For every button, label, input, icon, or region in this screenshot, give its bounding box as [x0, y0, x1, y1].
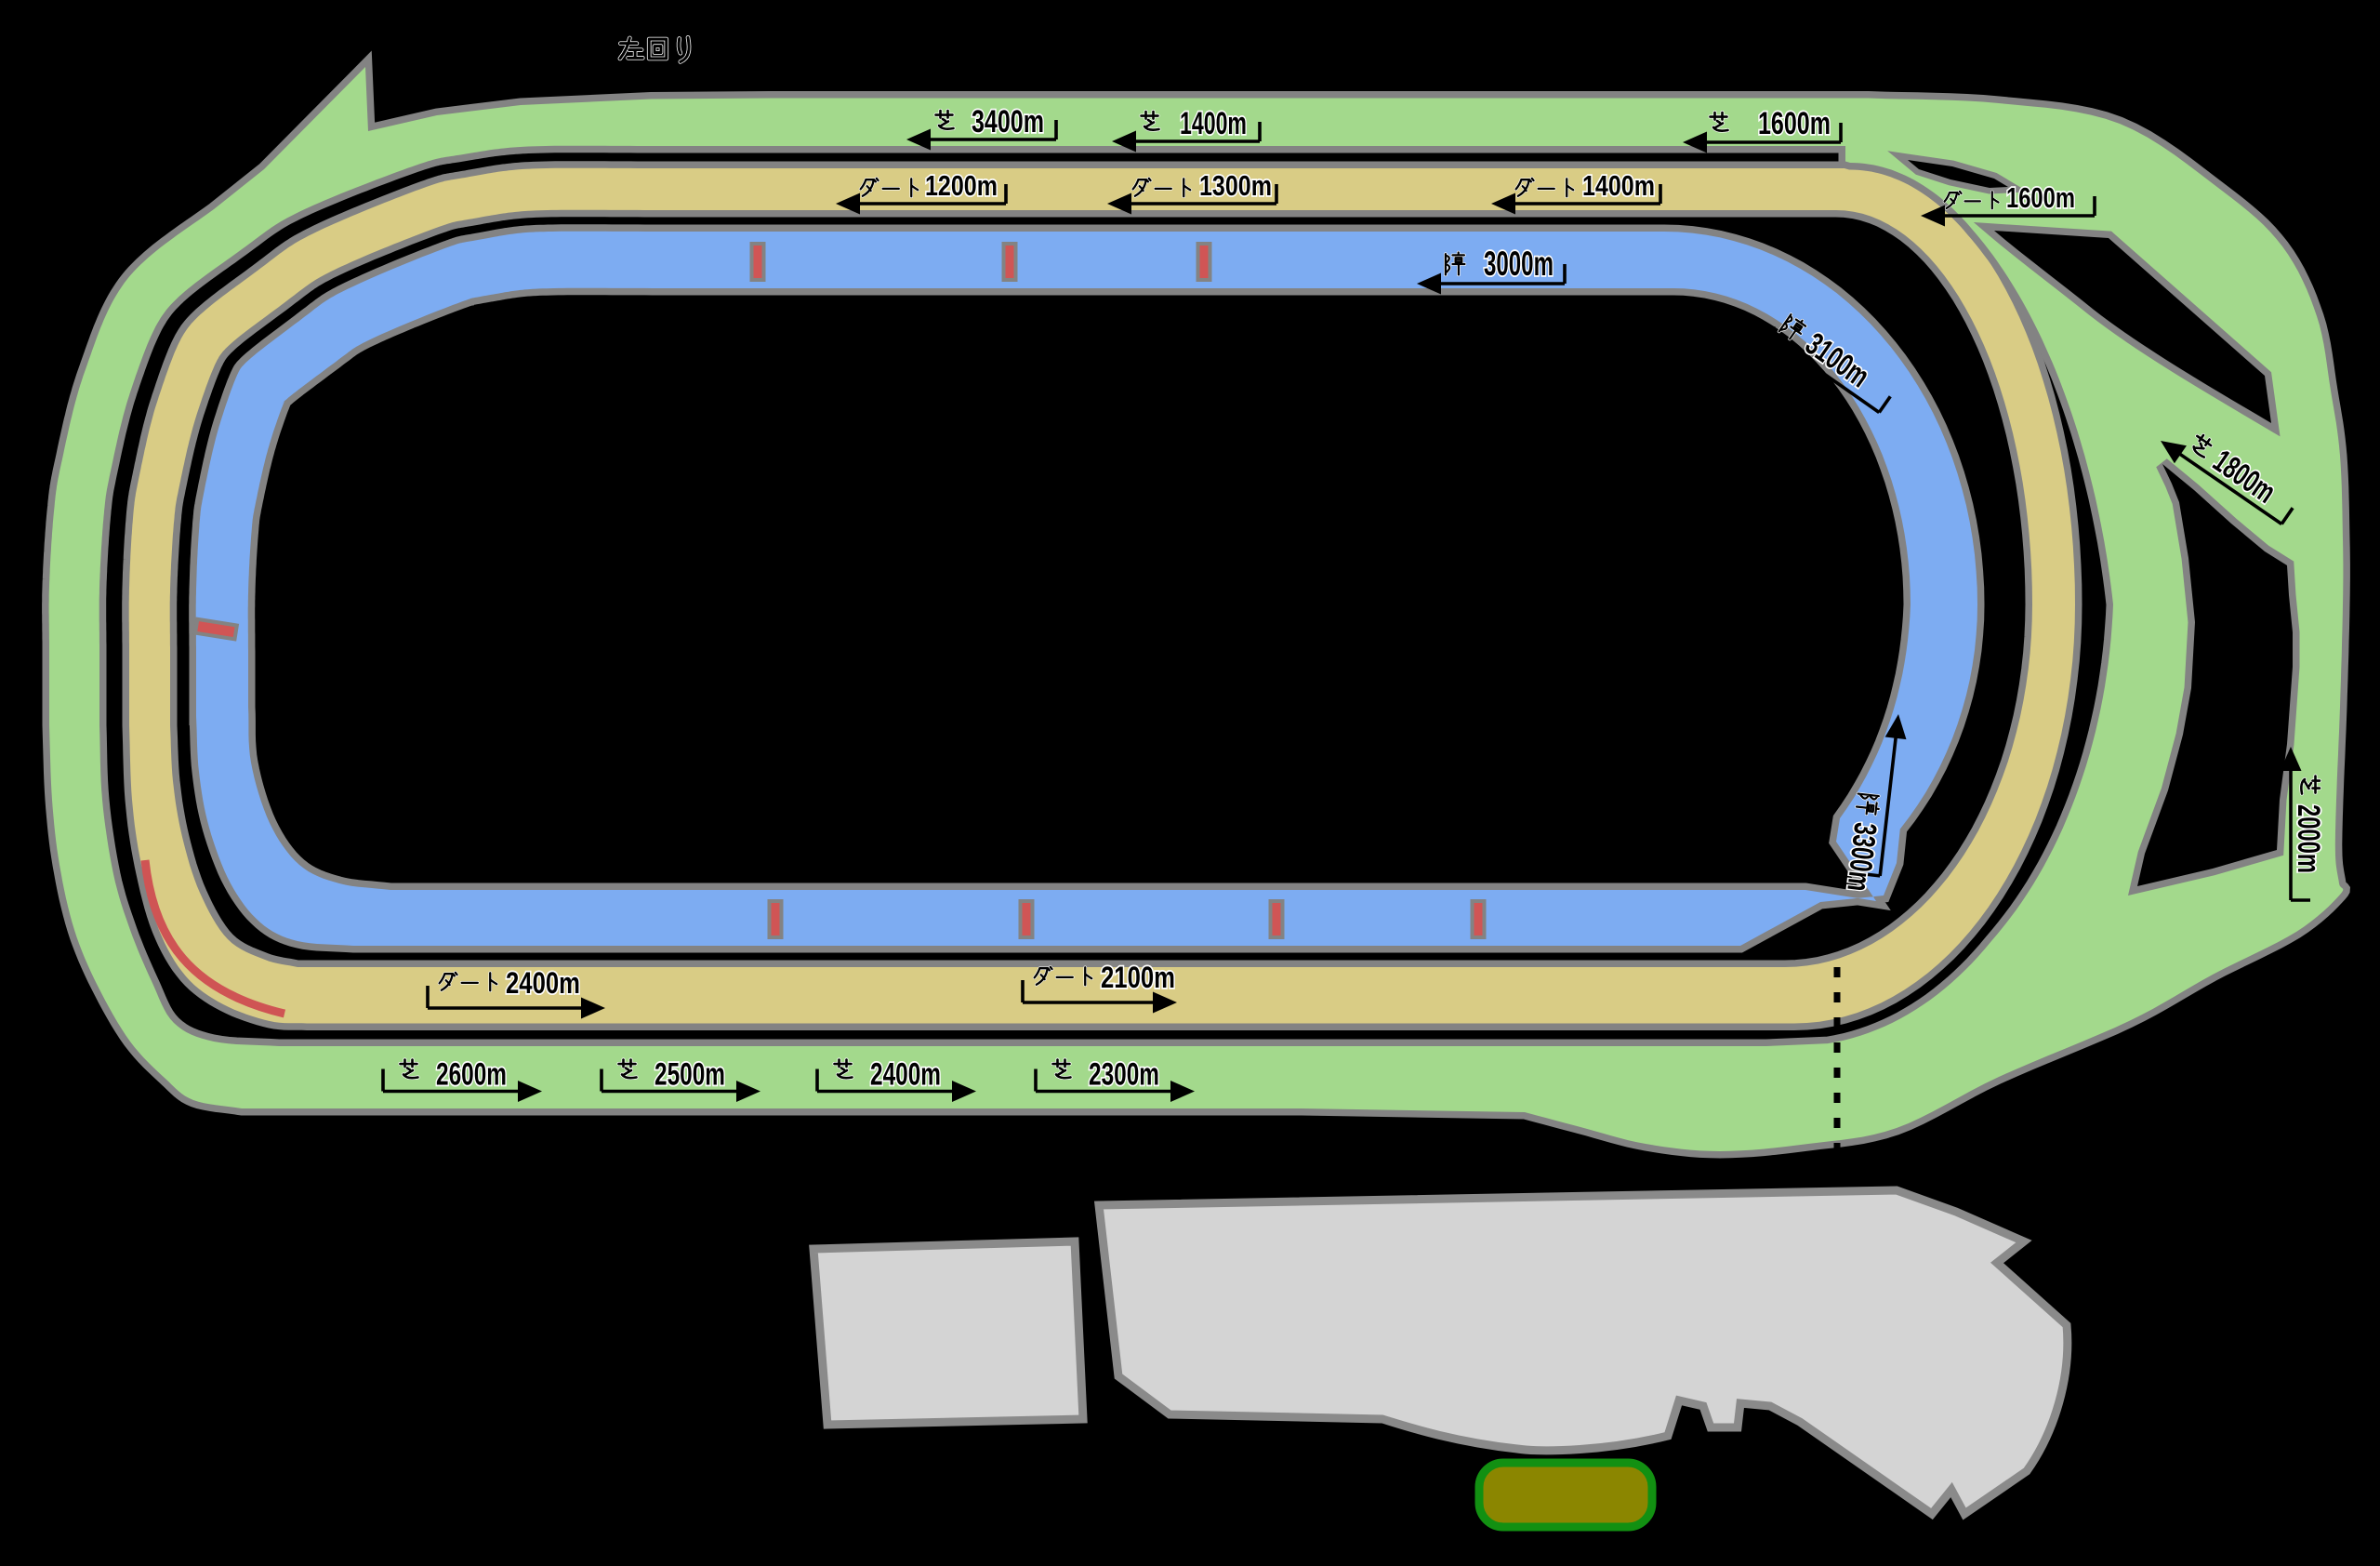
svg-text:2600m: 2600m: [436, 1057, 507, 1093]
svg-text:2300m: 2300m: [1089, 1057, 1159, 1093]
svg-text:1600m: 1600m: [2006, 181, 2075, 214]
svg-text:2400m: 2400m: [506, 966, 580, 1000]
svg-text:2100m: 2100m: [1101, 961, 1175, 994]
svg-text:3400m: 3400m: [972, 104, 1044, 139]
svg-text:1400m: 1400m: [1180, 106, 1247, 141]
svg-text:1600m: 1600m: [1758, 106, 1831, 141]
svg-text:1300m: 1300m: [1199, 169, 1272, 202]
svg-text:2000m: 2000m: [2291, 804, 2326, 873]
svg-text:3000m: 3000m: [1484, 245, 1554, 283]
svg-text:2400m: 2400m: [870, 1057, 941, 1093]
svg-text:1400m: 1400m: [1582, 169, 1655, 202]
svg-text:1200m: 1200m: [925, 169, 998, 202]
svg-text:2500m: 2500m: [654, 1057, 725, 1093]
